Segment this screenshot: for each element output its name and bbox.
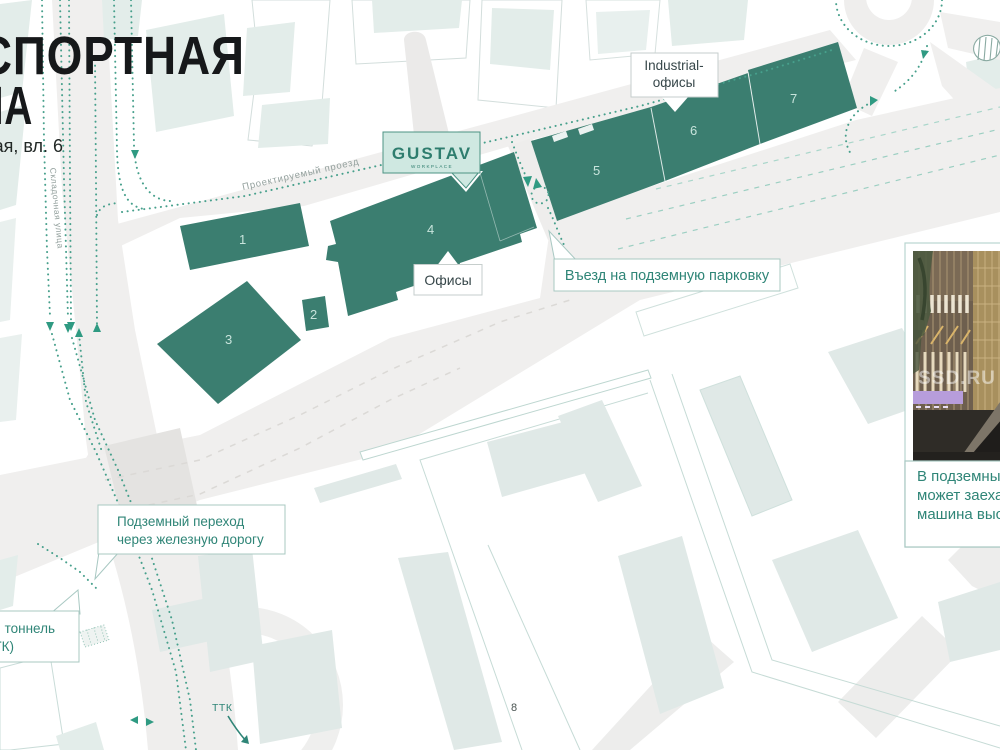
svg-text:WORKPLACE: WORKPLACE bbox=[411, 164, 453, 169]
svg-text:(ТТК): (ТТК) bbox=[0, 639, 14, 654]
svg-text:1: 1 bbox=[239, 232, 246, 247]
svg-text:через железную дорогу: через железную дорогу bbox=[117, 532, 264, 547]
svg-text:Складочная, вл. 6: Складочная, вл. 6 bbox=[0, 136, 63, 156]
svg-text:Въезд на подземную парковку: Въезд на подземную парковку bbox=[565, 268, 770, 284]
svg-text:ТРАНСПОРТНАЯ: ТРАНСПОРТНАЯ bbox=[0, 26, 245, 86]
svg-text:6: 6 bbox=[690, 123, 697, 138]
svg-text:GUSTAV: GUSTAV bbox=[392, 144, 472, 163]
svg-text:Автомобильный тоннель: Автомобильный тоннель bbox=[0, 621, 55, 636]
svg-text:3: 3 bbox=[225, 332, 232, 347]
svg-text:Подземный переход: Подземный переход bbox=[117, 514, 244, 529]
svg-text:2: 2 bbox=[310, 307, 317, 322]
svg-text:офисы: офисы bbox=[653, 75, 696, 90]
svg-text:8: 8 bbox=[511, 702, 517, 714]
svg-text:может заехать любая: может заехать любая bbox=[917, 487, 1000, 504]
svg-text:СХЕМА: СХЕМА bbox=[0, 75, 33, 136]
svg-text:Industrial-: Industrial- bbox=[644, 58, 703, 73]
svg-text:ТТК: ТТК bbox=[212, 702, 233, 714]
svg-text:В подземный паркинг: В подземный паркинг bbox=[917, 468, 1000, 485]
svg-text:4: 4 bbox=[427, 222, 434, 237]
svg-text:5: 5 bbox=[593, 163, 600, 178]
svg-text:7: 7 bbox=[790, 91, 797, 106]
svg-text:SSD.RU: SSD.RU bbox=[918, 368, 996, 389]
svg-text:Офисы: Офисы bbox=[424, 272, 471, 288]
svg-text:машина высотой 2,7 м: машина высотой 2,7 м bbox=[917, 506, 1000, 523]
